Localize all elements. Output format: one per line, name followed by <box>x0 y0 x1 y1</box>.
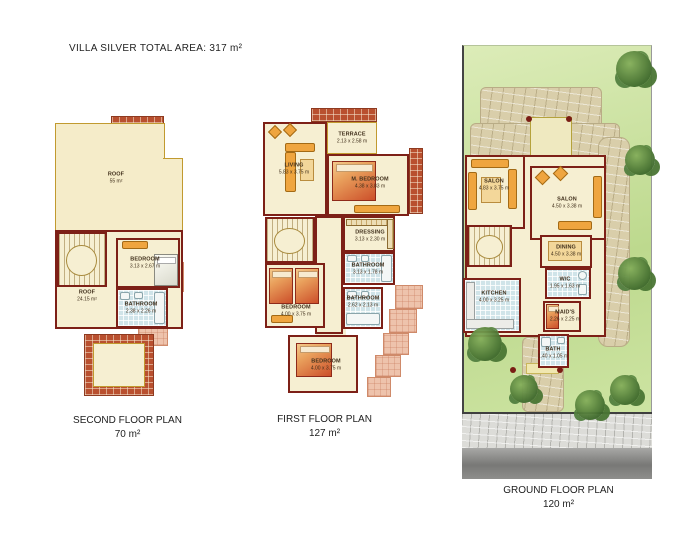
road <box>462 448 652 479</box>
floor-plan-sheet: VILLA SILVER TOTAL AREA: 317 m² ROOF 55 … <box>0 0 700 544</box>
second-floor-plan-title: SECOND FLOOR PLAN 70 m² <box>45 414 210 441</box>
tree-icon <box>625 145 655 175</box>
terrace-step-decor <box>383 333 409 355</box>
dresser-icon <box>122 241 148 249</box>
bed-icon <box>295 268 319 304</box>
dining-table-icon <box>548 241 582 261</box>
terrace-step-decor <box>367 377 391 397</box>
document-title: VILLA SILVER TOTAL AREA: 317 m² <box>55 42 242 56</box>
bed-icon <box>296 343 332 377</box>
tree-icon <box>618 257 651 290</box>
sofa-icon <box>285 143 315 152</box>
sidewalk <box>462 412 652 448</box>
terrace-roof-tiles <box>311 108 377 122</box>
tree-icon <box>616 51 652 87</box>
terrace-step-decor <box>375 355 401 377</box>
shower-icon <box>541 337 551 347</box>
sofa-icon <box>508 169 517 209</box>
sofa-icon <box>468 172 477 210</box>
bathtub-icon <box>381 255 392 282</box>
first-floor-plan-title: FIRST FLOOR PLAN 127 m² <box>242 413 407 440</box>
sink-icon <box>120 292 130 300</box>
sink-icon <box>347 255 357 262</box>
sofa-icon <box>285 152 296 192</box>
terrace-step-decor <box>389 309 417 333</box>
column-marker <box>510 367 516 373</box>
bed-icon <box>546 304 559 329</box>
dresser-icon <box>354 205 400 213</box>
entry-court <box>530 117 572 159</box>
bed-icon <box>269 268 293 304</box>
total-area: TOTAL AREA: 317 m² <box>140 43 242 54</box>
sink-icon <box>347 291 357 298</box>
coffee-table-icon <box>481 177 501 203</box>
stairs-icon <box>467 225 512 267</box>
tree-icon <box>610 375 640 405</box>
tree-icon <box>510 375 538 403</box>
room-terrace <box>327 122 377 154</box>
roof-upper-area <box>55 123 165 235</box>
column-marker <box>557 367 563 373</box>
terrace-step-decor <box>395 285 423 309</box>
stairs-icon <box>265 217 315 263</box>
toilet-icon <box>361 255 369 262</box>
terrace-floor <box>93 343 145 387</box>
first-floor-plan: TERRACE 2.13 x 2.58 m LIVING 5.83 x 3.75… <box>258 103 430 403</box>
column-marker <box>526 116 532 122</box>
toilet-icon <box>361 291 369 298</box>
bed-icon <box>332 161 376 201</box>
second-floor-plan: ROOF 55 m² ROOF 24.15 m² BEDROOM 3.13 x … <box>52 112 202 402</box>
sofa-icon <box>593 176 602 218</box>
wardrobe-icon <box>387 219 394 249</box>
ground-floor-plan: SALON 4.83 x 3.75 m SALON 4.50 x 3.38 m … <box>460 45 656 479</box>
sink-icon <box>557 337 565 344</box>
toilet-icon <box>134 292 143 299</box>
sink-icon <box>578 271 587 280</box>
stairs-icon <box>57 232 107 287</box>
coffee-table-icon <box>300 159 314 181</box>
sofa-icon <box>558 221 592 230</box>
dresser-icon <box>271 315 293 323</box>
column-marker <box>566 116 572 122</box>
roof-upper-extension <box>163 158 183 235</box>
villa-name: VILLA SILVER <box>69 43 137 54</box>
toilet-icon <box>578 284 587 295</box>
ground-floor-plan-title: GROUND FLOOR PLAN 120 m² <box>476 484 641 511</box>
bathtub-icon <box>154 292 165 324</box>
bed-icon <box>154 254 178 286</box>
tree-icon <box>575 390 605 420</box>
bathtub-icon <box>346 313 380 325</box>
tree-icon <box>468 327 502 361</box>
balcony-tiles <box>409 148 423 214</box>
sofa-icon <box>471 159 509 168</box>
wardrobe-icon <box>346 219 391 226</box>
